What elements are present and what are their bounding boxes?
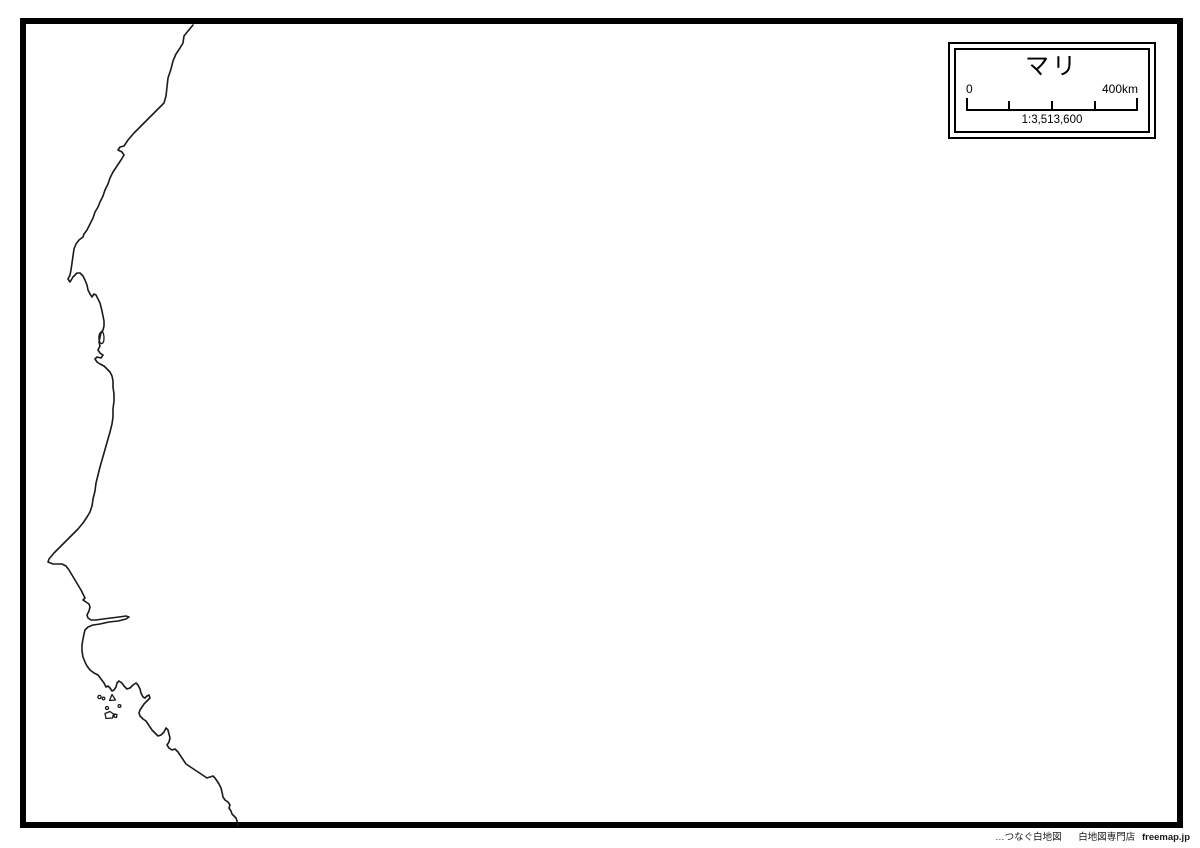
blank-map-page: マリ 0 400km 1:3,513,600 …つなぐ白地図 白地図専門店 fr… [0, 0, 1200, 848]
scalebar-tick [1051, 101, 1053, 109]
scalebar-labels: 0 400km [966, 83, 1138, 96]
map-frame [20, 18, 1183, 828]
scalebar-tick [966, 98, 968, 109]
map-legend-inner-border: マリ 0 400km 1:3,513,600 [954, 48, 1150, 133]
scalebar-end-label: 400km [1102, 83, 1138, 96]
scalebar-tick [1136, 98, 1138, 109]
credit-site-name: freemap.jp [1142, 832, 1190, 843]
scalebar-tick [1008, 101, 1010, 109]
scalebar-tick [1094, 101, 1096, 109]
credit-shop-name: 白地図専門店 [1078, 832, 1135, 843]
scale-ratio: 1:3,513,600 [966, 114, 1138, 126]
map-title: マリ [966, 52, 1138, 82]
scalebar-start-label: 0 [966, 83, 973, 96]
scale-bar [966, 97, 1138, 111]
site-credit: …つなぐ白地図 白地図専門店 freemap.jp [0, 829, 1190, 843]
credit-tagline: …つなぐ白地図 [995, 832, 1062, 843]
map-legend-box: マリ 0 400km 1:3,513,600 [948, 42, 1156, 139]
